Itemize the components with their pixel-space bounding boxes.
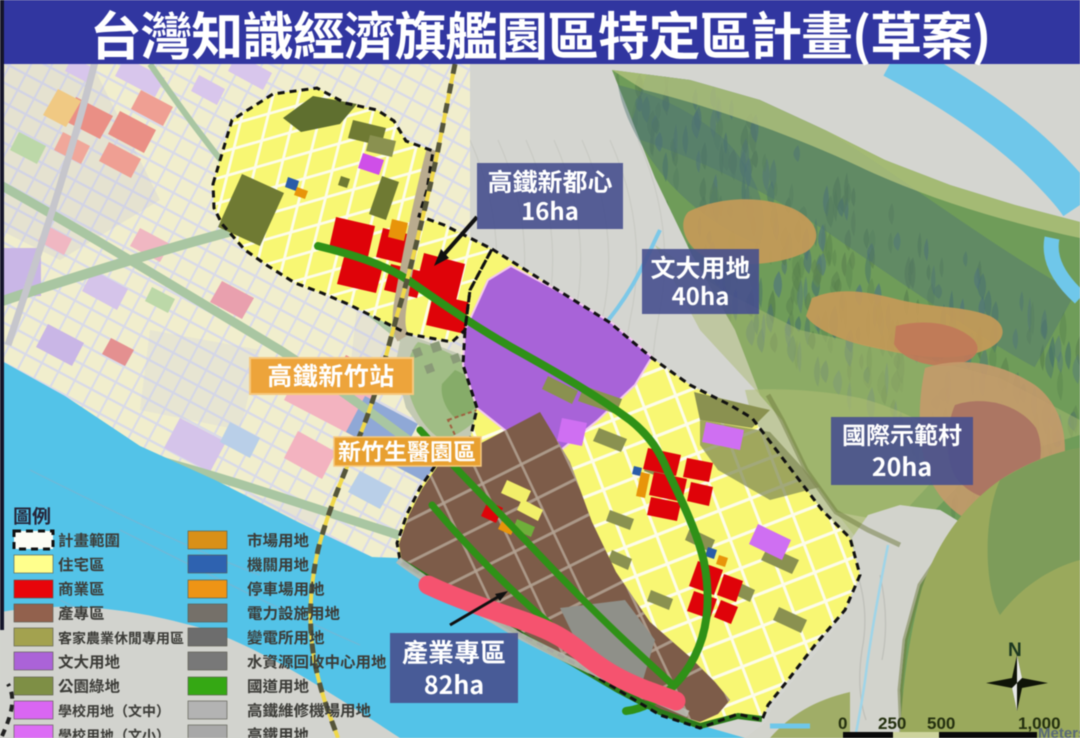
- svg-text:N: N: [1008, 640, 1022, 661]
- svg-text:250: 250: [878, 714, 906, 733]
- svg-text:Meters: Meters: [1038, 725, 1080, 738]
- svg-text:0: 0: [838, 714, 847, 733]
- svg-text:500: 500: [927, 714, 955, 733]
